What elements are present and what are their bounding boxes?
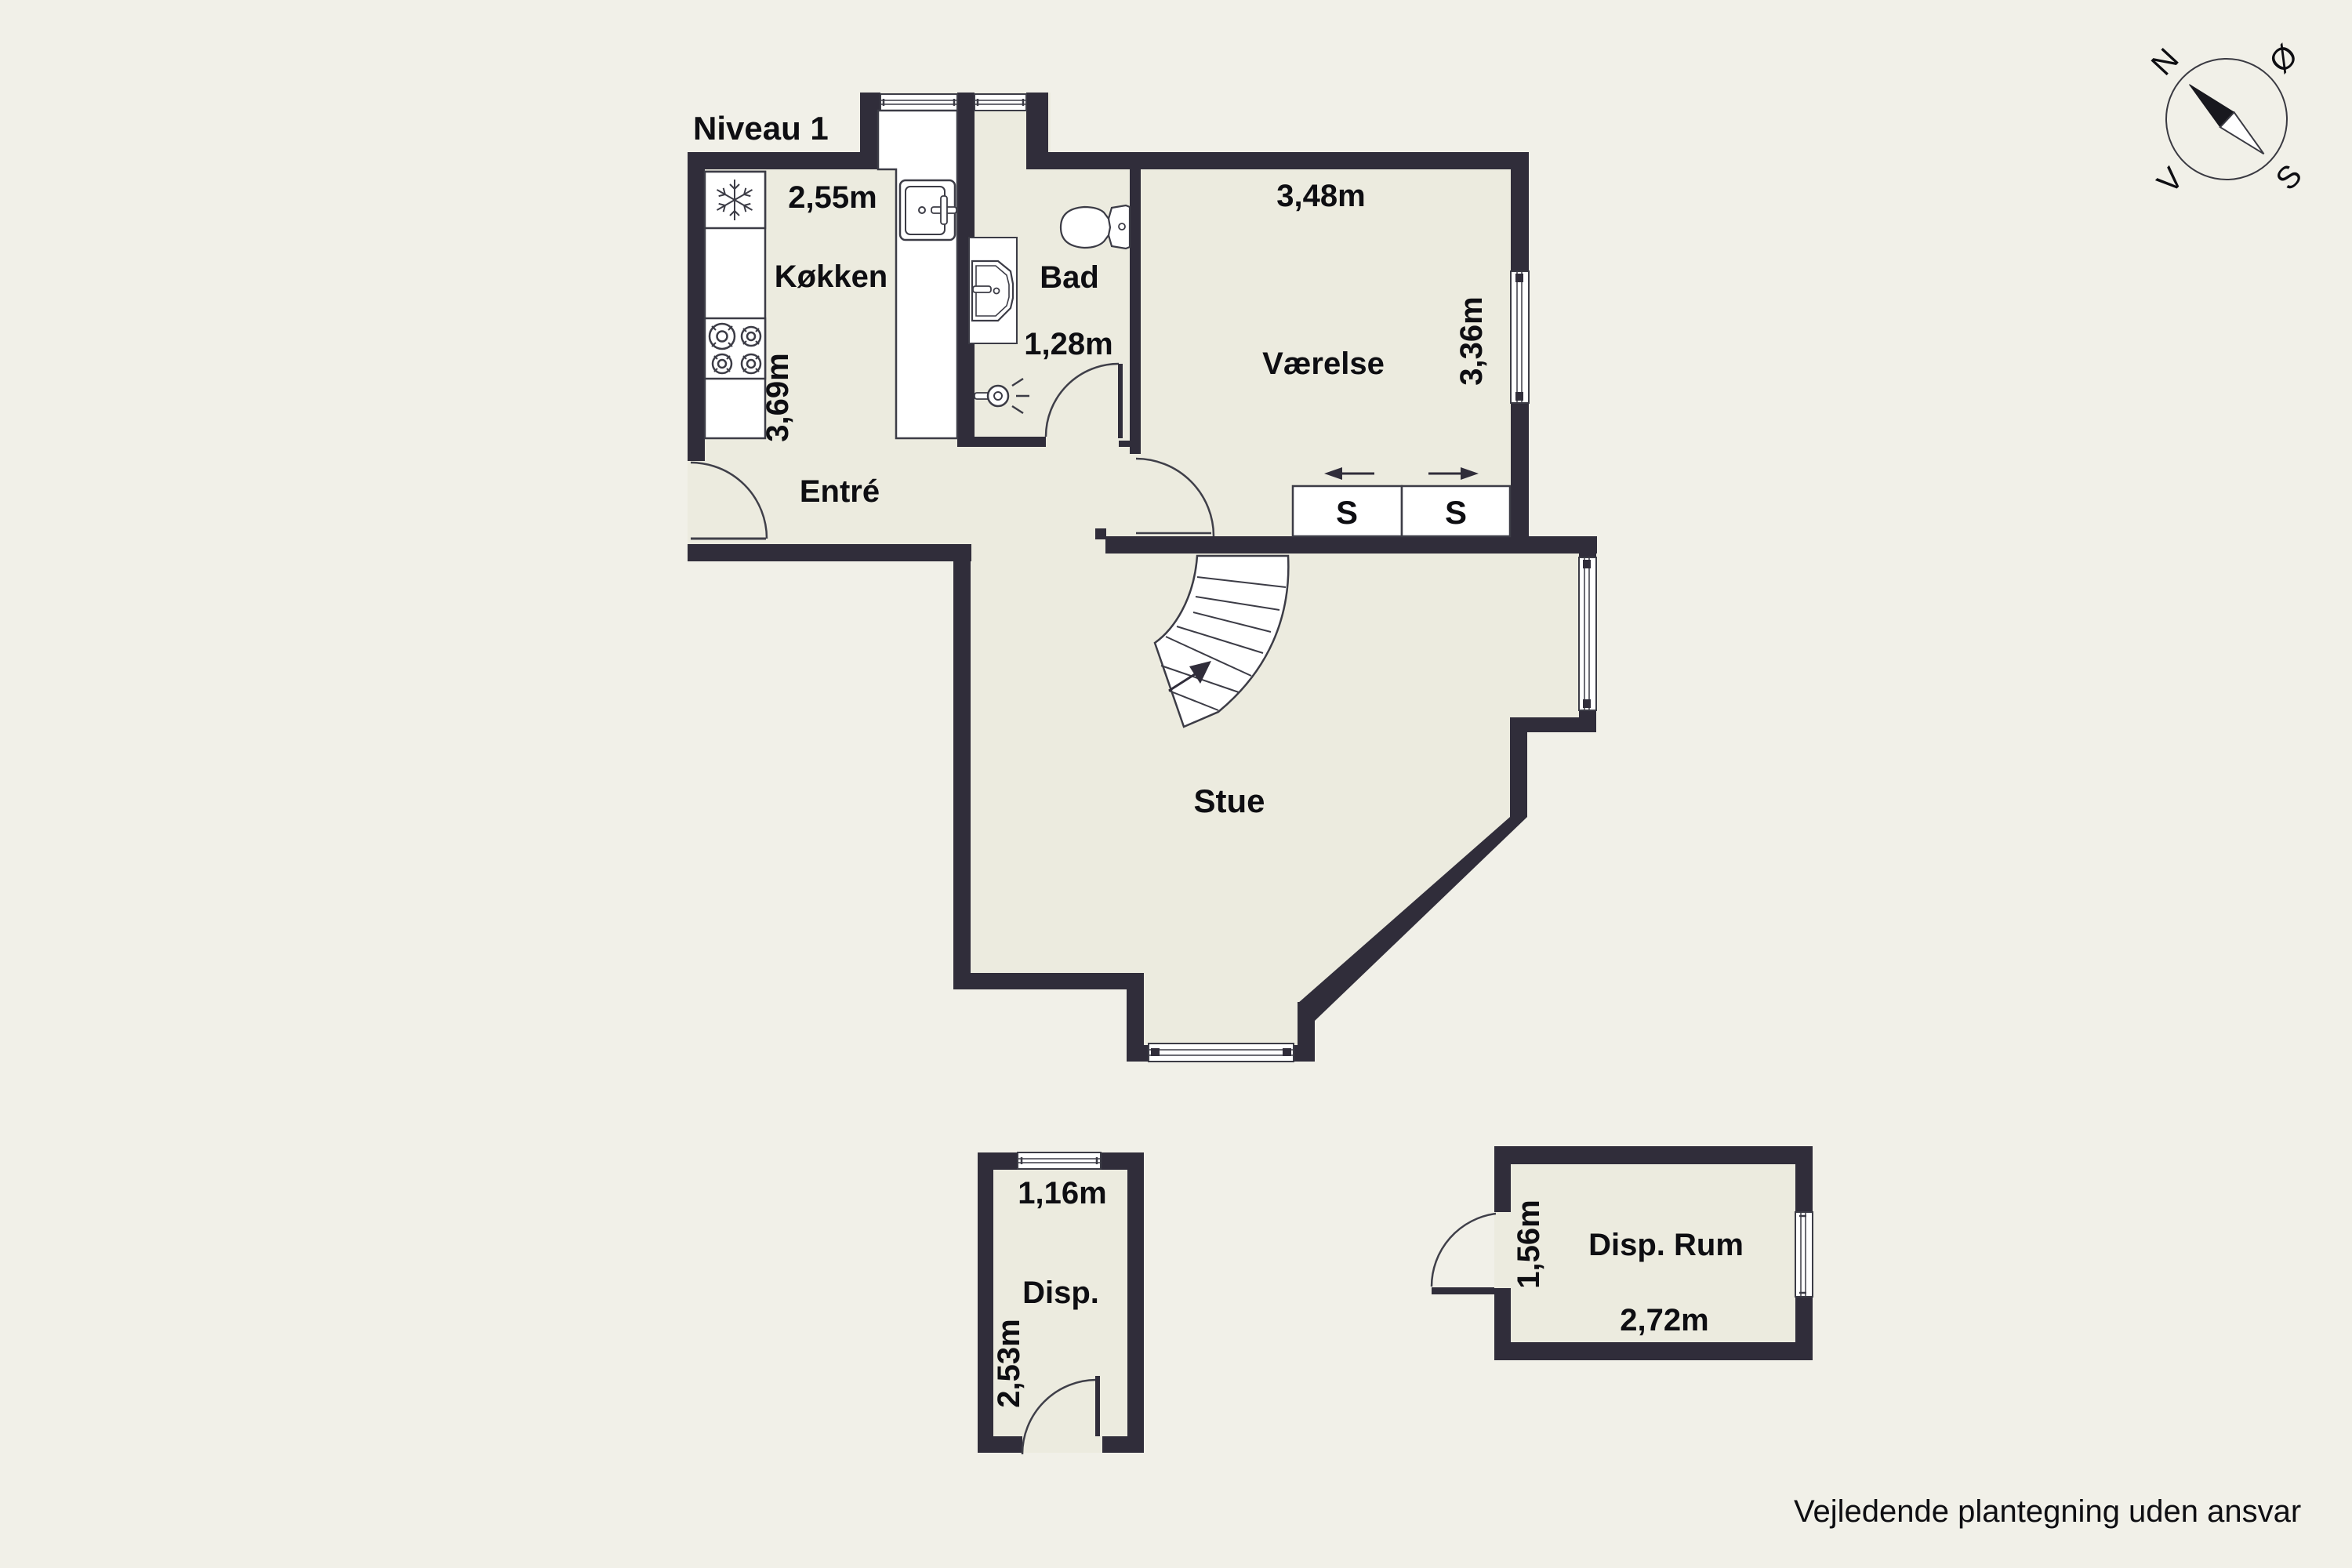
svg-text:Disp. Rum: Disp. Rum	[1588, 1228, 1744, 1262]
svg-text:1,28m: 1,28m	[1024, 327, 1112, 361]
svg-text:3,36m: 3,36m	[1454, 296, 1489, 385]
svg-text:Køkken: Køkken	[775, 260, 888, 294]
svg-text:1,56m: 1,56m	[1512, 1200, 1546, 1288]
svg-text:1,16m: 1,16m	[1018, 1176, 1106, 1210]
svg-text:Disp.: Disp.	[1022, 1276, 1099, 1310]
svg-text:3,69m: 3,69m	[760, 353, 795, 441]
svg-text:2,53m: 2,53m	[992, 1319, 1026, 1407]
svg-text:2,72m: 2,72m	[1620, 1303, 1708, 1338]
svg-text:2,55m: 2,55m	[788, 180, 877, 215]
svg-text:S: S	[1336, 494, 1358, 531]
svg-text:Niveau 1: Niveau 1	[693, 110, 829, 147]
svg-text:Vejledende plantegning uden an: Vejledende plantegning uden ansvar	[1794, 1494, 2301, 1529]
svg-text:Stue: Stue	[1193, 782, 1265, 819]
svg-text:3,48m: 3,48m	[1276, 179, 1365, 213]
svg-text:Entré: Entré	[800, 474, 880, 509]
svg-text:S: S	[1445, 494, 1467, 531]
svg-text:Værelse: Værelse	[1262, 347, 1385, 381]
svg-text:Bad: Bad	[1040, 260, 1099, 295]
